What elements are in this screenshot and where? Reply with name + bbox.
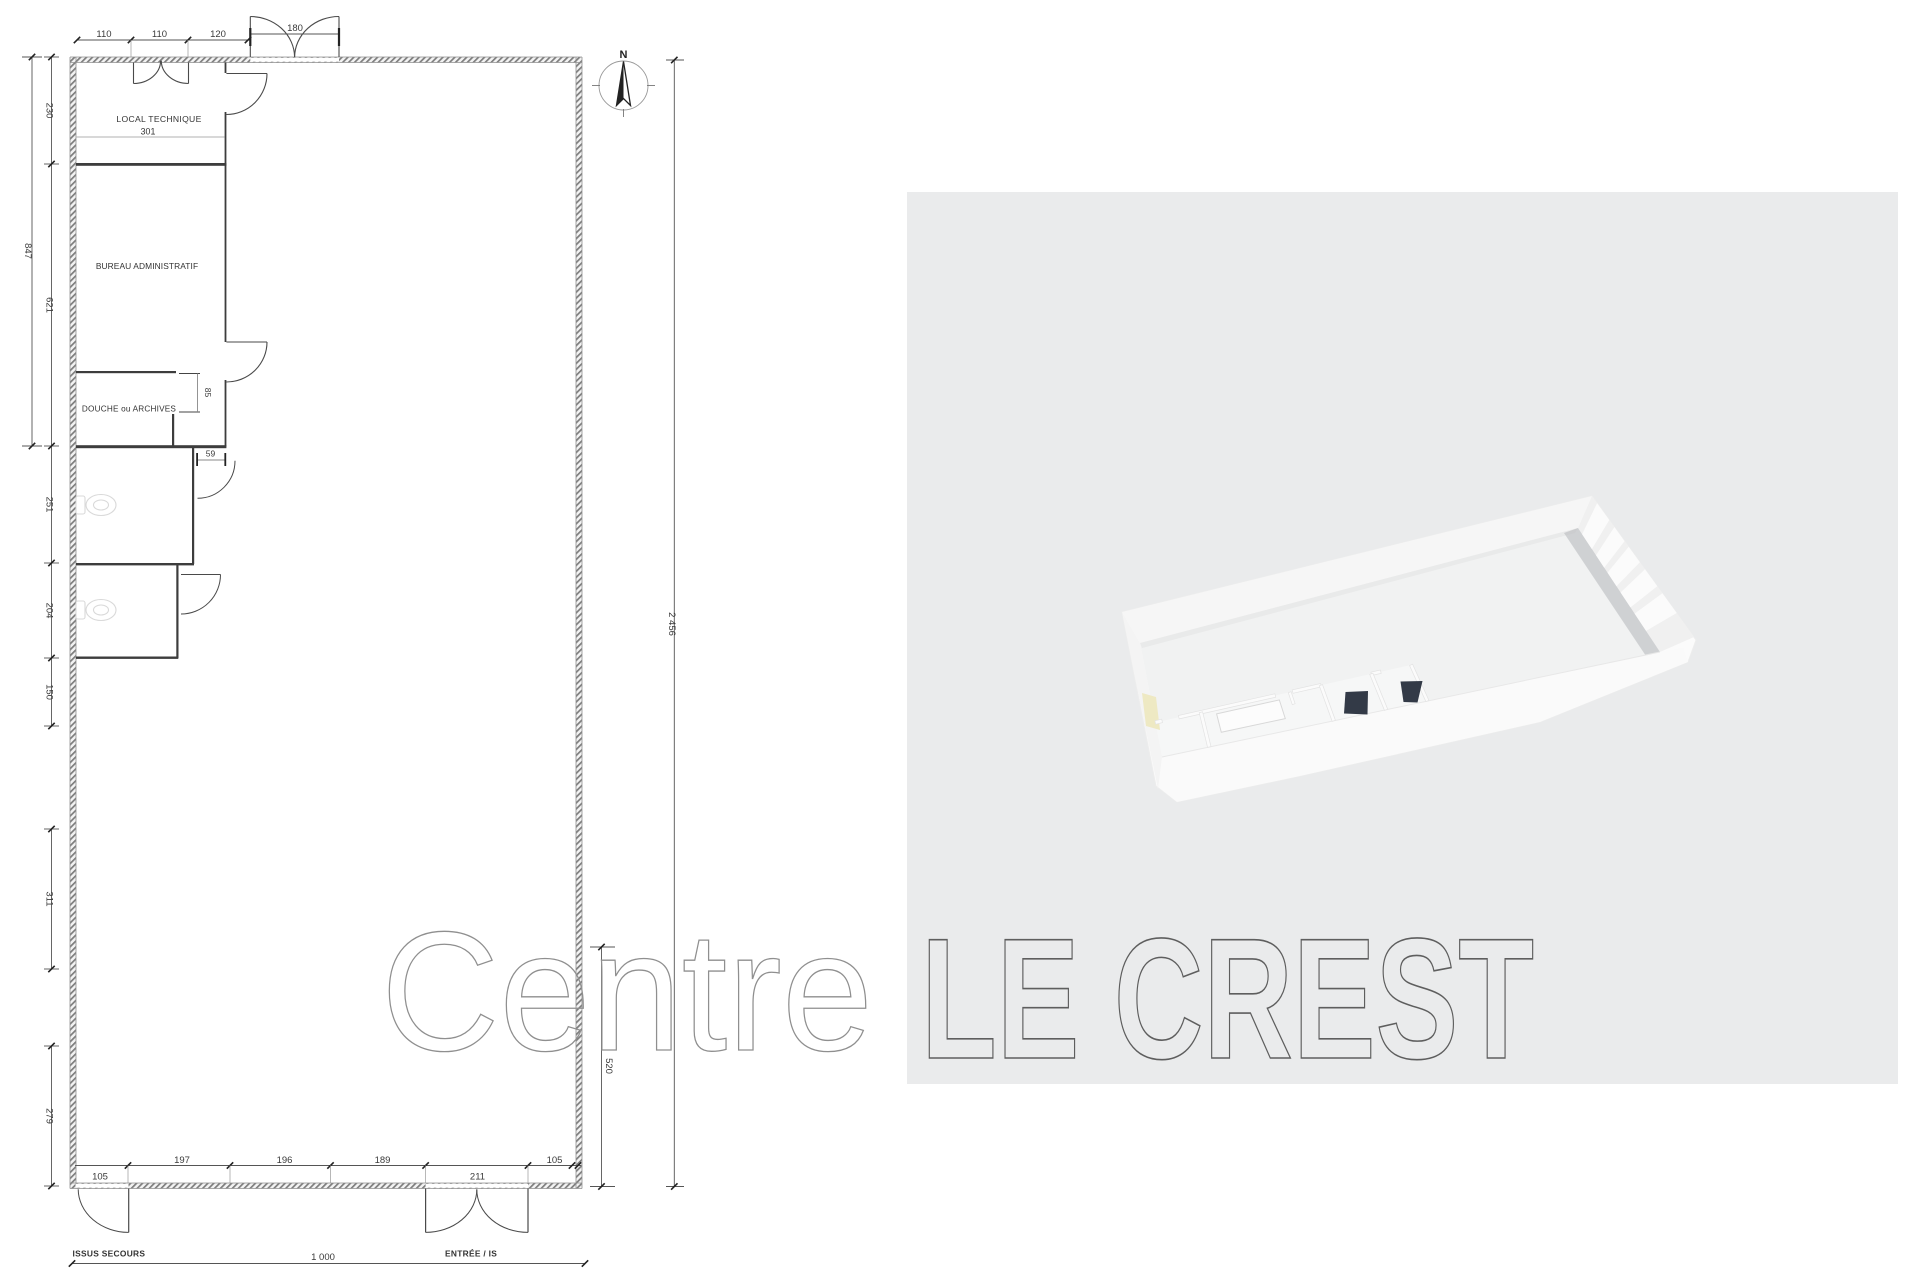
- svg-text:150: 150: [44, 684, 55, 700]
- svg-text:1 000: 1 000: [311, 1252, 335, 1263]
- svg-text:DOUCHE ou ARCHIVES: DOUCHE ou ARCHIVES: [82, 405, 176, 414]
- svg-text:Centre: Centre: [381, 897, 873, 1087]
- svg-text:LOCAL TECHNIQUE: LOCAL TECHNIQUE: [116, 114, 201, 124]
- svg-text:ENTRÉE / IS: ENTRÉE / IS: [445, 1248, 497, 1259]
- svg-text:251: 251: [44, 497, 55, 513]
- svg-text:847: 847: [22, 243, 33, 259]
- svg-text:105: 105: [92, 1172, 108, 1183]
- svg-text:230: 230: [44, 103, 55, 119]
- svg-text:189: 189: [375, 1155, 391, 1166]
- svg-text:110: 110: [152, 29, 167, 40]
- svg-text:59: 59: [206, 449, 216, 459]
- svg-text:ISSUS SECOURS: ISSUS SECOURS: [73, 1249, 146, 1259]
- svg-text:110: 110: [96, 29, 111, 40]
- svg-text:301: 301: [141, 127, 156, 137]
- svg-text:105: 105: [547, 1155, 563, 1166]
- svg-text:180: 180: [287, 23, 303, 34]
- svg-text:85: 85: [203, 388, 213, 398]
- svg-text:LE CREST: LE CREST: [921, 903, 1534, 1095]
- svg-text:BUREAU ADMINISTRATIF: BUREAU ADMINISTRATIF: [96, 261, 198, 271]
- svg-text:2 456: 2 456: [666, 612, 677, 636]
- svg-text:196: 196: [277, 1155, 293, 1166]
- svg-text:N: N: [620, 49, 628, 61]
- svg-text:211: 211: [470, 1172, 485, 1183]
- svg-text:197: 197: [174, 1155, 190, 1166]
- svg-text:621: 621: [44, 297, 55, 313]
- svg-text:311: 311: [44, 891, 55, 906]
- svg-text:120: 120: [210, 29, 226, 40]
- svg-text:204: 204: [44, 603, 55, 619]
- svg-text:279: 279: [44, 1108, 55, 1124]
